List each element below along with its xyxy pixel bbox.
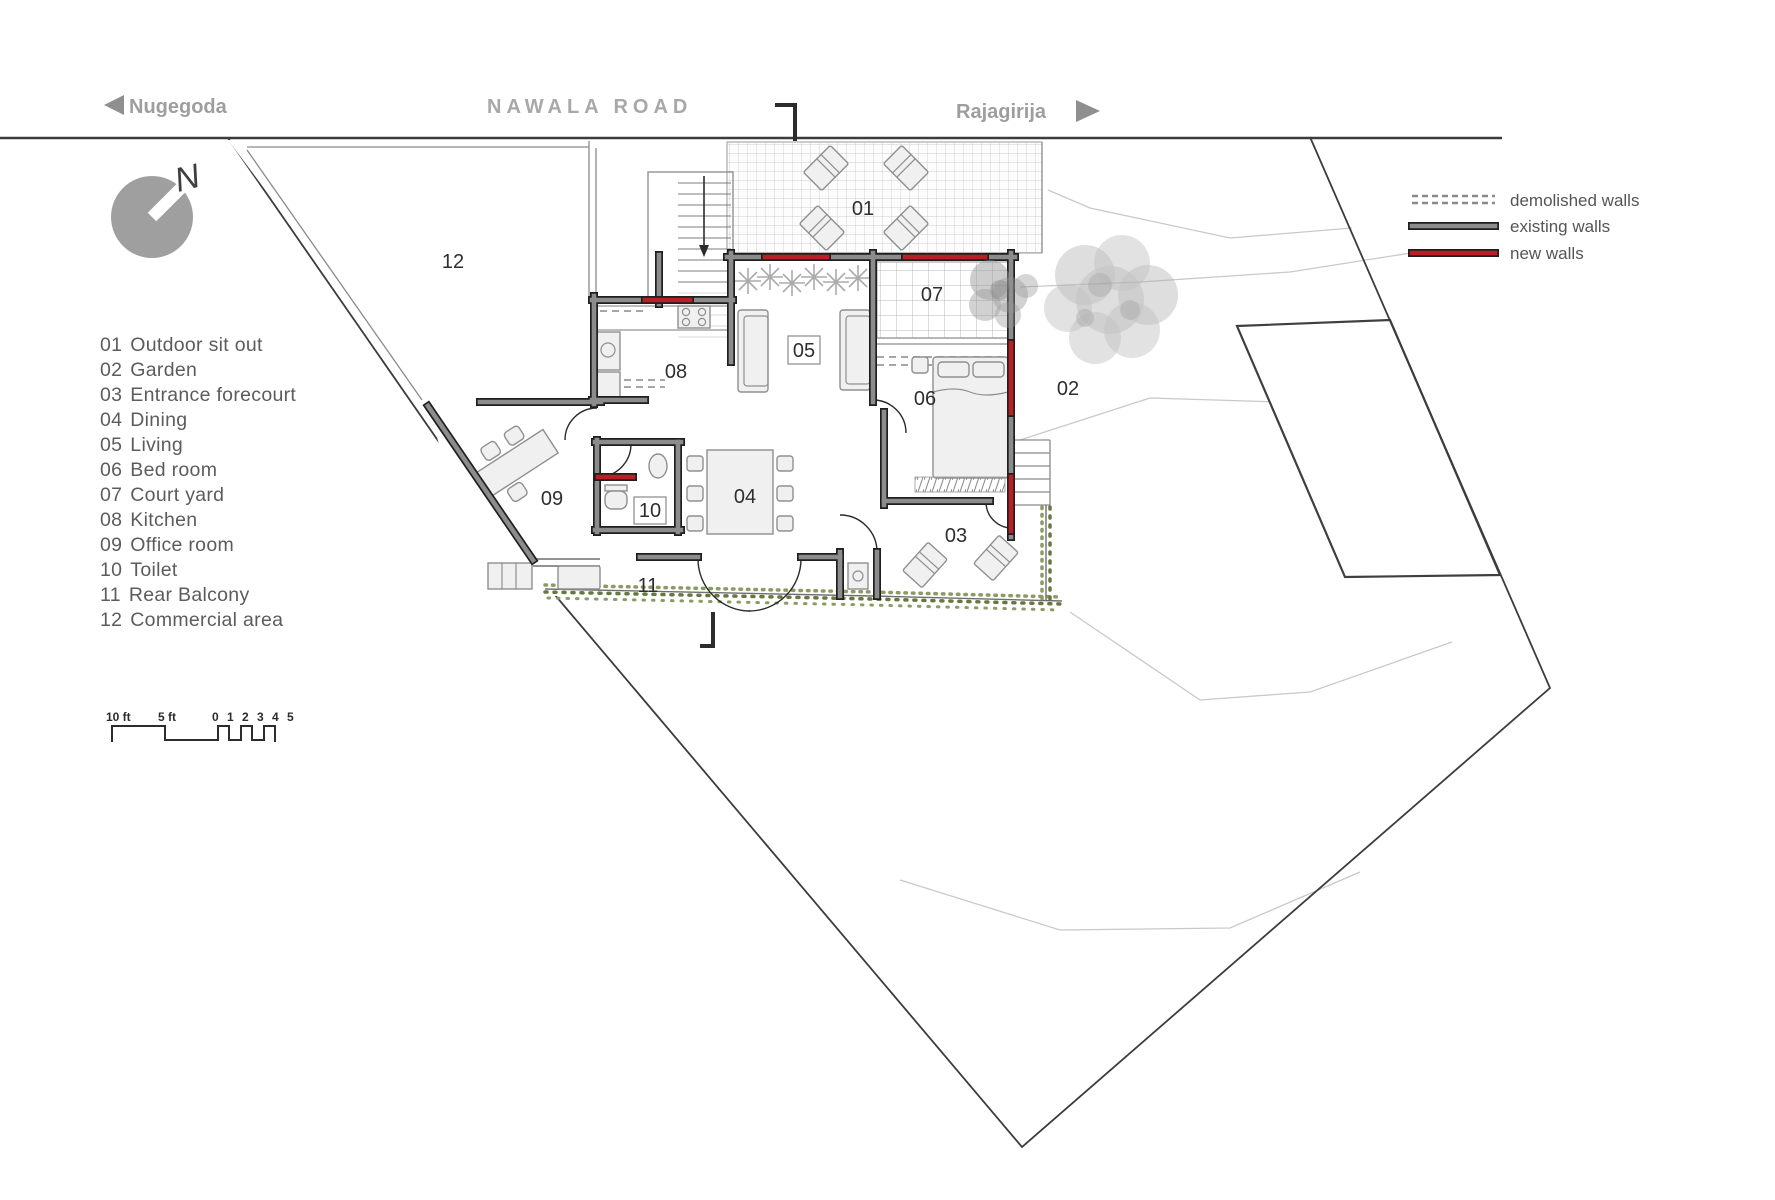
road-left-label: Nugegoda bbox=[129, 96, 228, 118]
room-list-item: 09Office room bbox=[100, 534, 234, 556]
label-room-01: 01 bbox=[852, 198, 874, 220]
section-marker-top bbox=[775, 105, 795, 141]
garden-steps bbox=[1015, 440, 1050, 505]
neighbour-building-outline bbox=[1237, 320, 1500, 577]
arrow-left-icon bbox=[104, 95, 124, 115]
room-list-item: 10Toilet bbox=[100, 559, 178, 581]
room-list-item: 07Court yard bbox=[100, 484, 224, 506]
scale-units-label: 0 1 2 3 4 5 bbox=[212, 710, 296, 724]
label-room-12: 12 bbox=[442, 251, 464, 273]
room-list-item: 03Entrance forecourt bbox=[100, 384, 296, 406]
courtyard-bush bbox=[969, 260, 1038, 328]
room-list-item: 04Dining bbox=[100, 409, 187, 431]
room-list-item: 01Outdoor sit out bbox=[100, 334, 263, 356]
road-labels: Nugegoda NAWALA ROAD Rajagirija bbox=[104, 95, 1100, 123]
label-room-09: 09 bbox=[541, 488, 563, 510]
room-list-item: 08Kitchen bbox=[100, 509, 197, 531]
label-room-05: 05 bbox=[793, 340, 815, 362]
scale-10ft-label: 10 ft bbox=[106, 710, 131, 724]
label-room-10: 10 bbox=[639, 500, 661, 522]
label-room-03: 03 bbox=[945, 525, 967, 547]
room-list-item: 05Living bbox=[100, 434, 183, 456]
room-list-item: 11Rear Balcony bbox=[100, 584, 250, 606]
north-compass: N bbox=[111, 157, 204, 258]
label-room-06: 06 bbox=[914, 388, 936, 410]
wall-legend: demolished walls existing walls new wall… bbox=[1412, 191, 1639, 263]
outdoor-sitout-paving bbox=[727, 142, 1042, 253]
legend-new-label: new walls bbox=[1510, 244, 1584, 263]
garden-tree bbox=[1044, 235, 1178, 364]
legend-existing-label: existing walls bbox=[1510, 217, 1610, 236]
scale-bar: 10 ft 5 ft 0 1 2 3 4 5 bbox=[106, 710, 296, 742]
floor-plan-drawing: 01 02 03 04 05 06 07 08 09 10 11 12 Nuge… bbox=[0, 0, 1775, 1200]
label-room-02: 02 bbox=[1057, 378, 1079, 400]
scale-5ft-label: 5 ft bbox=[158, 710, 176, 724]
label-room-11: 11 bbox=[638, 575, 659, 597]
section-marker-bottom bbox=[700, 612, 713, 646]
road-name-label: NAWALA ROAD bbox=[487, 96, 692, 118]
label-room-07: 07 bbox=[921, 284, 943, 306]
floor-plan-sheet: 01 02 03 04 05 06 07 08 09 10 11 12 Nuge… bbox=[0, 0, 1775, 1200]
legend-demolished-swatch bbox=[1412, 196, 1495, 203]
road-right-label: Rajagirija bbox=[956, 101, 1047, 123]
room-list-item: 06Bed room bbox=[100, 459, 217, 481]
label-room-08: 08 bbox=[665, 361, 687, 383]
room-list-item: 02Garden bbox=[100, 359, 197, 381]
legend-demolished-label: demolished walls bbox=[1510, 191, 1639, 210]
room-list: 01Outdoor sit out 02Garden 03Entrance fo… bbox=[100, 334, 296, 631]
arrow-right-icon bbox=[1076, 100, 1100, 122]
label-room-04: 04 bbox=[734, 486, 756, 508]
room-list-item: 12Commercial area bbox=[100, 609, 283, 631]
